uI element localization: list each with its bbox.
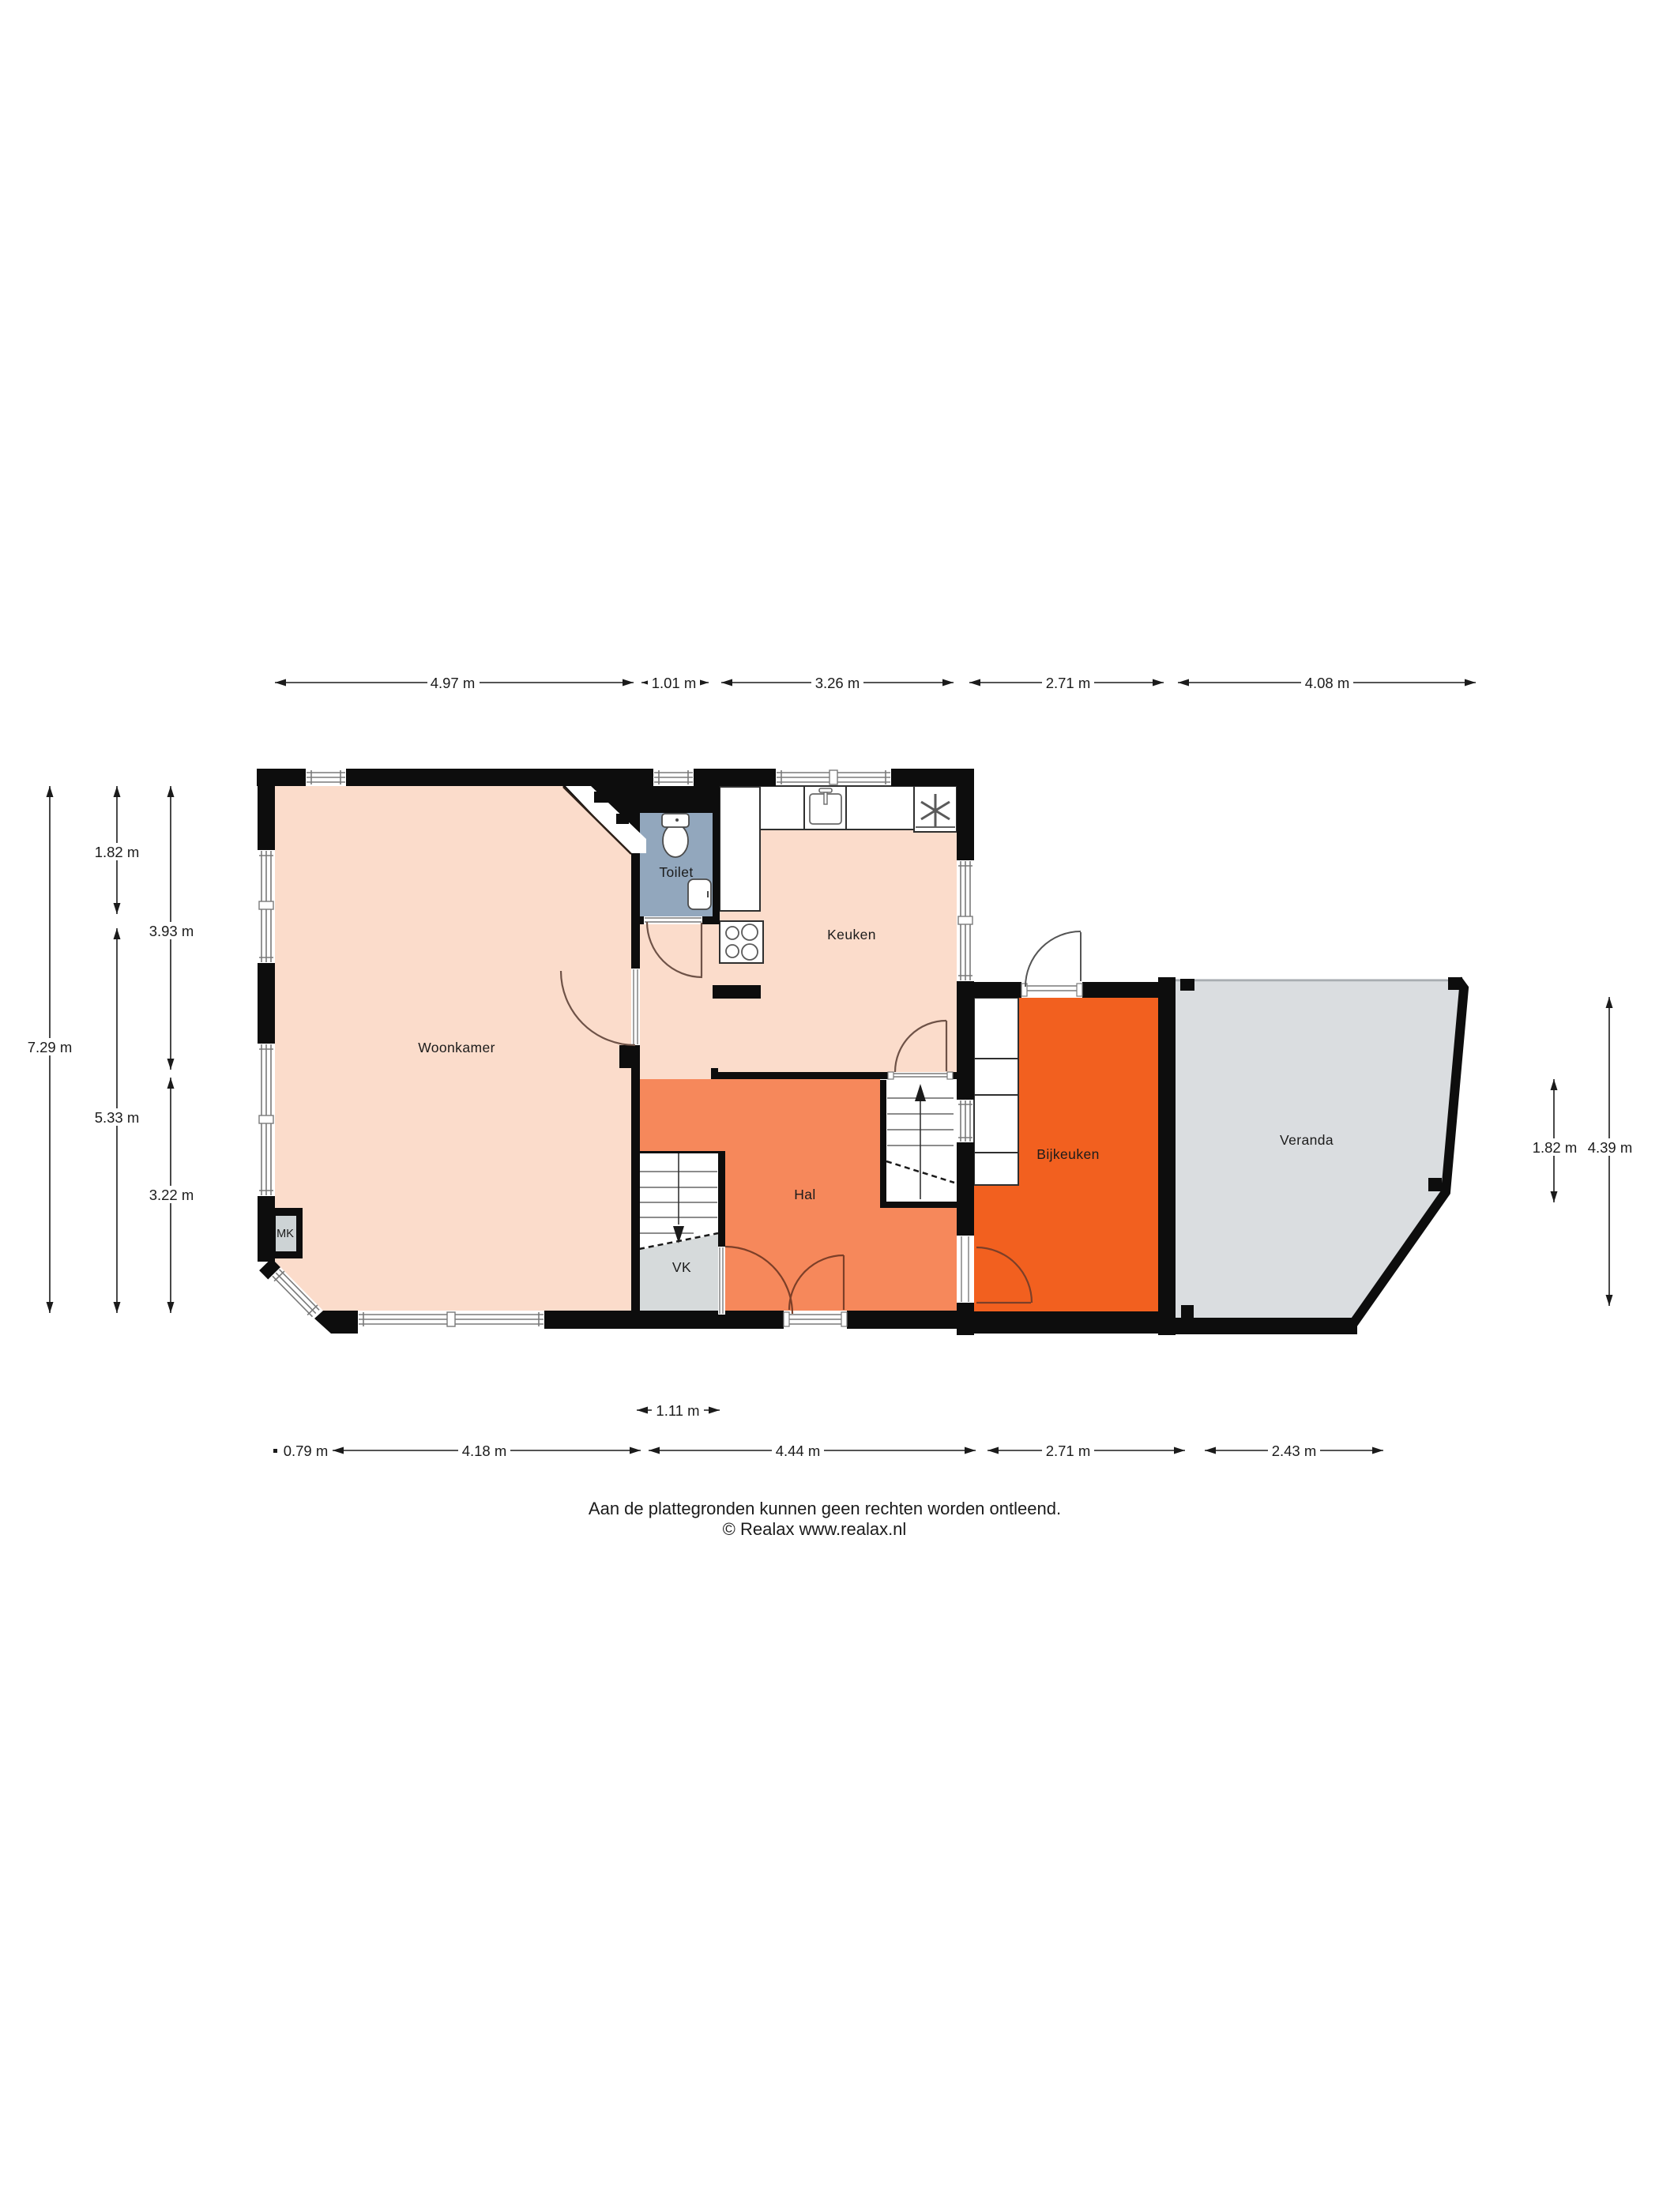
svg-text:3.22 m: 3.22 m [149,1187,194,1203]
svg-text:Bijkeuken: Bijkeuken [1036,1146,1099,1162]
svg-text:Veranda: Veranda [1280,1132,1334,1148]
svg-text:Aan de plattegronden kunnen ge: Aan de plattegronden kunnen geen rechten… [589,1499,1061,1518]
svg-text:2.43 m: 2.43 m [1272,1443,1317,1459]
svg-text:3.26 m: 3.26 m [815,675,860,691]
svg-text:4.97 m: 4.97 m [431,675,476,691]
svg-text:4.44 m: 4.44 m [776,1443,821,1459]
svg-text:2.71 m: 2.71 m [1046,675,1091,691]
svg-text:Hal: Hal [794,1187,815,1202]
svg-text:1.82 m: 1.82 m [1533,1139,1578,1156]
svg-text:© Realax www.realax.nl: © Realax www.realax.nl [723,1519,907,1539]
svg-text:Woonkamer: Woonkamer [418,1040,495,1055]
svg-text:4.08 m: 4.08 m [1305,675,1350,691]
svg-text:1.01 m: 1.01 m [652,675,697,691]
svg-text:3.93 m: 3.93 m [149,923,194,939]
svg-text:5.33 m: 5.33 m [95,1109,140,1126]
svg-text:MK: MK [276,1228,294,1240]
svg-text:4.18 m: 4.18 m [462,1443,507,1459]
svg-text:1.11 m: 1.11 m [656,1402,699,1419]
svg-text:0.79 m: 0.79 m [284,1443,329,1459]
svg-text:2.71 m: 2.71 m [1046,1443,1091,1459]
svg-text:VK: VK [672,1259,691,1275]
svg-text:Toilet: Toilet [659,864,693,880]
svg-text:4.39 m: 4.39 m [1588,1139,1633,1156]
svg-text:Keuken: Keuken [827,927,876,942]
svg-text:1.82 m: 1.82 m [95,844,140,860]
svg-text:7.29 m: 7.29 m [28,1039,73,1055]
